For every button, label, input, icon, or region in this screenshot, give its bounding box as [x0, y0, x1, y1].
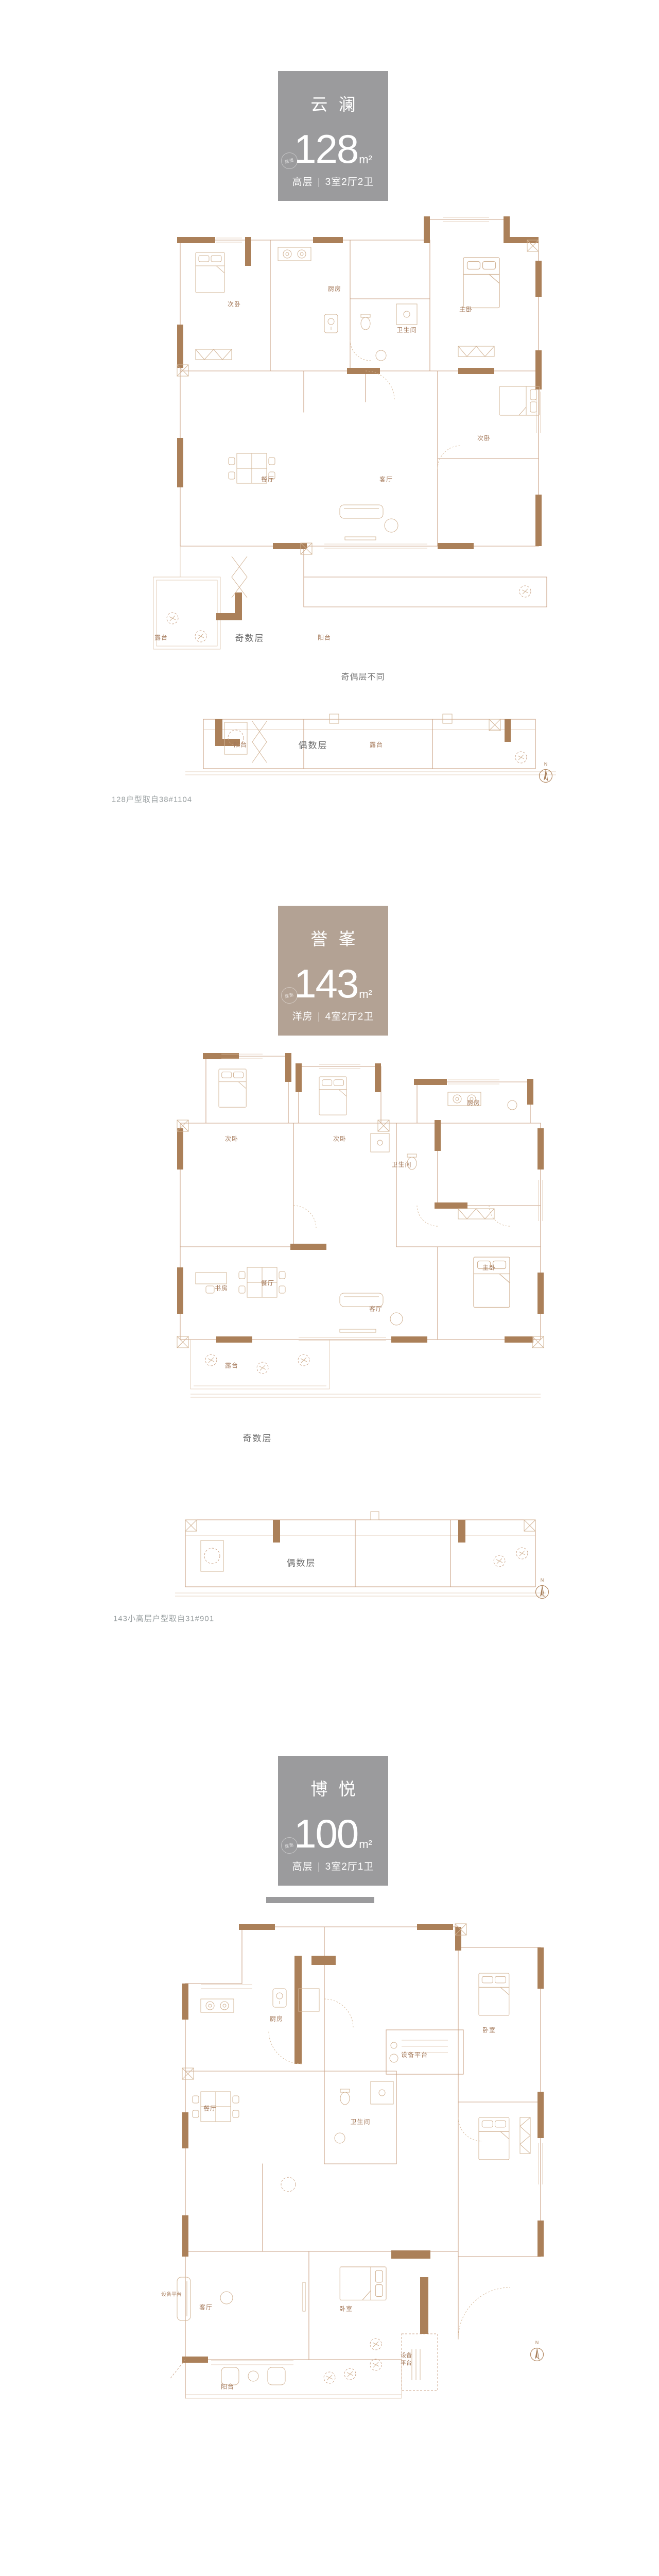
note-label: 奇偶层不同	[341, 670, 385, 682]
unit-name: 博 悦	[278, 1756, 388, 1800]
unit-area: 143	[294, 965, 358, 1003]
spec-divider: |	[313, 1861, 325, 1872]
unit-spec: 高层|3室2厅2卫	[278, 174, 388, 188]
unit-spec: 高层|3室2厅1卫	[278, 1859, 388, 1873]
unit-badge-yunlan: 云 澜 建面 128 m² 高层|3室2厅2卫	[278, 71, 388, 201]
compass-north-label: N	[539, 761, 553, 767]
unit-area: 128	[294, 131, 358, 168]
page-canvas: 云 澜 建面 128 m² 高层|3室2厅2卫	[0, 0, 659, 2576]
unit-area: 100	[294, 1816, 358, 1853]
compass-icon: N	[535, 1578, 549, 1603]
unit-room-config: 4室2厅2卫	[325, 1011, 374, 1022]
compass-icon: N	[539, 761, 553, 787]
floor-plan-yunlan-even-strip-drawing	[175, 711, 556, 783]
compass-icon: N	[530, 2340, 544, 2365]
unit-name: 云 澜	[278, 71, 388, 115]
unit-badge-yufeng: 誉 峯 建面 143 m² 洋房|4室2厅2卫	[278, 906, 388, 1036]
spec-divider: |	[313, 1011, 325, 1022]
unit-floor-type: 高层	[292, 177, 313, 188]
floor-plan-yufeng-odd-drawing	[170, 1051, 551, 1448]
unit-area-unit: m²	[359, 151, 372, 168]
unit-room-config: 3室2厅2卫	[325, 177, 374, 188]
compass-north-label: N	[530, 2340, 544, 2345]
unit-spec: 洋房|4室2厅2卫	[278, 1009, 388, 1023]
unit-area-unit: m²	[359, 986, 372, 1003]
floor-plan-yufeng-even-strip-drawing	[170, 1510, 551, 1607]
floor-plan-boyue-drawing	[170, 1896, 551, 2406]
caption-label: 128户型取自38#1104	[112, 794, 192, 805]
unit-floor-type: 洋房	[292, 1011, 313, 1022]
caption-label: 143小高层户型取自31#901	[113, 1613, 214, 1624]
spec-divider: |	[313, 177, 325, 188]
unit-badge-boyue: 博 悦 建面 100 m² 高层|3室2厅1卫	[278, 1756, 388, 1886]
floor-plan-yunlan-odd-drawing	[149, 216, 551, 659]
compass-north-label: N	[535, 1578, 549, 1583]
unit-area-unit: m²	[359, 1836, 372, 1853]
unit-name: 誉 峯	[278, 906, 388, 950]
unit-room-config: 3室2厅1卫	[325, 1861, 374, 1872]
unit-floor-type: 高层	[292, 1861, 313, 1872]
